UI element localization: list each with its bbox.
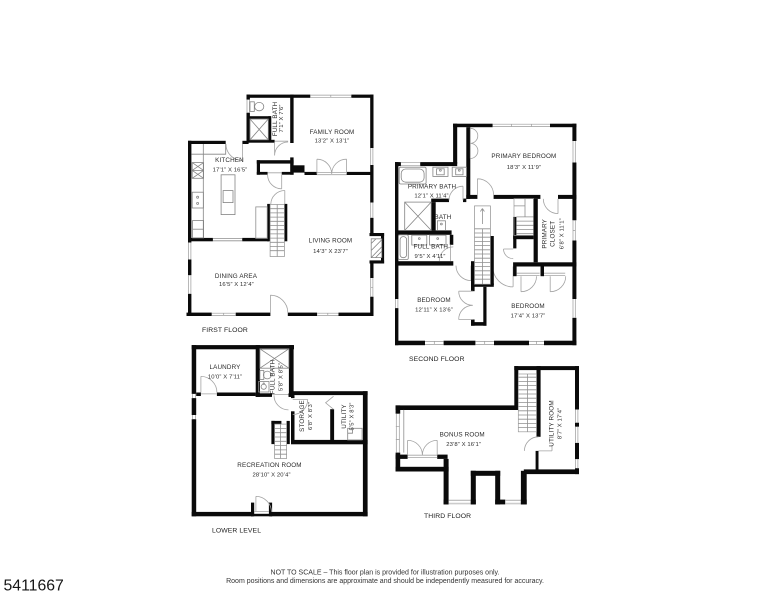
svg-text:UTILITY ROOM: UTILITY ROOM [549, 400, 556, 446]
svg-text:RECREATION ROOM: RECREATION ROOM [237, 462, 301, 469]
svg-text:THIRD FLOOR: THIRD FLOOR [424, 513, 471, 520]
svg-text:UTILITY: UTILITY [341, 404, 348, 429]
svg-text:BEDROOM: BEDROOM [511, 303, 545, 310]
svg-text:23’8” X 16’1”: 23’8” X 16’1” [446, 442, 481, 448]
svg-text:PRIMARY BATH: PRIMARY BATH [408, 184, 457, 191]
svg-text:BEDROOM: BEDROOM [417, 297, 451, 304]
svg-text:CLOSET: CLOSET [549, 221, 556, 247]
svg-text:LAUNDRY: LAUNDRY [209, 364, 241, 371]
svg-text:12’11” X 13’6”: 12’11” X 13’6” [415, 308, 453, 314]
svg-text:10’0” X 7’11”: 10’0” X 7’11” [208, 375, 242, 381]
svg-text:Room positions and dimensions: Room positions and dimensions are approx… [226, 578, 544, 585]
svg-text:STORAGE: STORAGE [299, 400, 306, 432]
svg-text:KITCHEN: KITCHEN [215, 157, 244, 164]
svg-text:7’1” X 7’6”: 7’1” X 7’6” [279, 105, 285, 133]
svg-text:12’1” X 11’4”: 12’1” X 11’4” [414, 193, 448, 199]
svg-text:5’5” X 8’3”: 5’5” X 8’3” [349, 403, 355, 431]
svg-text:13’2” X 13’1”: 13’2” X 13’1” [315, 139, 350, 145]
svg-text:NOT TO SCALE – This floor plan: NOT TO SCALE – This floor plan is provid… [271, 570, 500, 577]
svg-text:6’8” X 8’3”: 6’8” X 8’3” [308, 402, 314, 430]
svg-text:9’5” X 4’11”: 9’5” X 4’11” [415, 254, 446, 260]
svg-text:28’10” X 20’4”: 28’10” X 20’4” [252, 473, 290, 479]
svg-text:FULL BATH: FULL BATH [414, 244, 449, 251]
svg-text:5411667: 5411667 [4, 578, 64, 594]
svg-text:PRIMARY BEDROOM: PRIMARY BEDROOM [491, 153, 556, 160]
svg-text:18’3” X 11’9”: 18’3” X 11’9” [507, 165, 541, 171]
svg-text:FULL BATH: FULL BATH [269, 359, 276, 394]
svg-text:FAMILY ROOM: FAMILY ROOM [310, 129, 355, 136]
svg-text:5’8” X 8’5”: 5’8” X 8’5” [279, 363, 285, 391]
svg-text:LIVING ROOM: LIVING ROOM [309, 238, 353, 245]
svg-text:8’7” X 17’4”: 8’7” X 17’4” [558, 408, 564, 439]
svg-text:FULL BATH: FULL BATH [272, 101, 279, 136]
svg-text:FIRST FLOOR: FIRST FLOOR [202, 327, 248, 334]
svg-text:LOWER LEVEL: LOWER LEVEL [212, 528, 261, 535]
svg-text:14’3” X 23’7”: 14’3” X 23’7” [313, 249, 348, 255]
svg-text:DINING AREA: DINING AREA [215, 273, 258, 280]
svg-text:17’4” X 13’7”: 17’4” X 13’7” [511, 314, 546, 320]
svg-text:6’8” X 11’1”: 6’8” X 11’1” [560, 218, 566, 249]
svg-text:SECOND FLOOR: SECOND FLOOR [409, 356, 465, 363]
svg-text:17’1” X 16’5”: 17’1” X 16’5” [213, 168, 248, 174]
svg-text:BATH: BATH [435, 214, 452, 221]
svg-text:16’5” X 12’4”: 16’5” X 12’4” [219, 282, 254, 288]
svg-text:BONUS ROOM: BONUS ROOM [440, 432, 485, 439]
svg-text:PRIMARY: PRIMARY [542, 218, 549, 248]
